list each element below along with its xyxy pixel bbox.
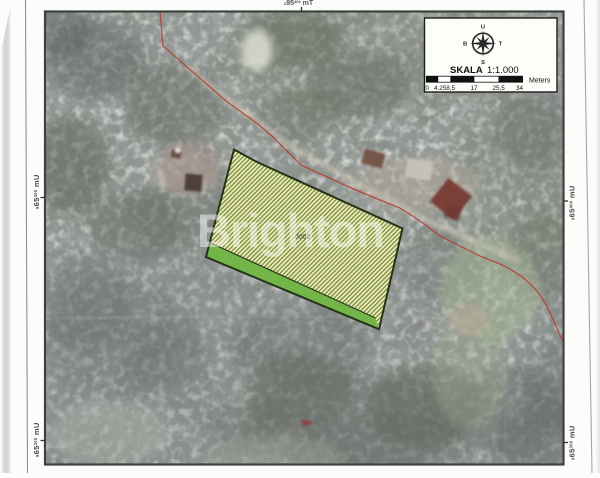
svg-text:0: 0: [426, 85, 430, 92]
svg-text:SKALA: SKALA: [450, 65, 483, 76]
svg-text:4.258,5: 4.258,5: [434, 85, 456, 92]
svg-text:Brighton: Brighton: [197, 204, 385, 257]
svg-text:Meters: Meters: [529, 78, 551, 85]
svg-text:T: T: [499, 42, 503, 48]
svg-text:B: B: [463, 42, 467, 48]
svg-text:1:1.000: 1:1.000: [487, 65, 519, 76]
svg-text:U: U: [481, 25, 485, 31]
svg-text:17: 17: [471, 85, 479, 92]
svg-text:25,5: 25,5: [493, 85, 506, 92]
svg-text:34: 34: [516, 85, 524, 92]
